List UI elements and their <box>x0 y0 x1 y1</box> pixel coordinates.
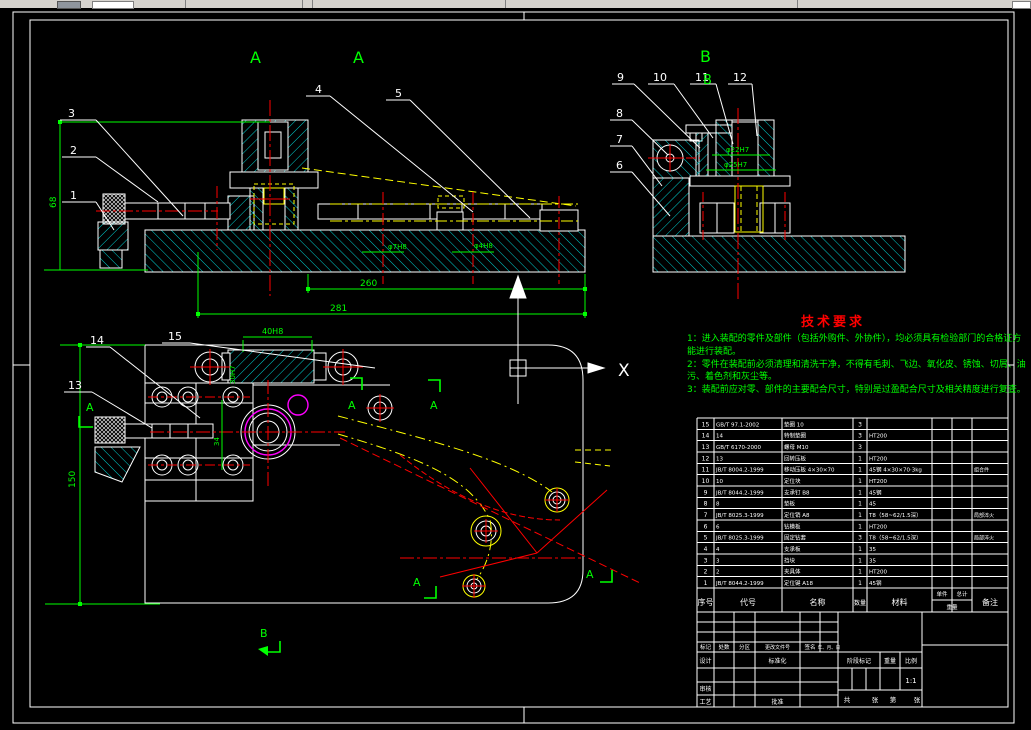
bom-row-qty: 1 <box>858 523 862 530</box>
section-mark-a2: A <box>353 48 364 67</box>
tb-sign: 签名 <box>804 643 815 651</box>
bom-row-name: 螺母 M10 <box>784 443 809 451</box>
balloon-10: 10 <box>653 71 667 84</box>
bom-header-qty: 数量 <box>854 599 866 607</box>
plan-section-marks: A A A A A B <box>79 378 612 656</box>
dim-slot: 40H8 <box>262 327 283 336</box>
bom-header-remark: 备注 <box>982 597 998 607</box>
balloon-4: 4 <box>315 83 322 96</box>
tech-req-line: 3：装配前应对零、部件的主要配合尺寸，特别是过盈配合尺寸及相关精度进行复查。 <box>687 384 979 397</box>
section-mark-a7: A <box>586 568 594 581</box>
bom-row-no: 9 <box>704 489 708 496</box>
bom-row-qty: 1 <box>858 569 862 576</box>
bom-row-no: 6 <box>704 523 708 530</box>
bom-header-weight: 重量 <box>946 603 958 611</box>
tech-req-line: 2：零件在装配前必须清理和清洗干净，不得有毛刺、飞边、氧化皮、锈蚀、切屑、油 <box>687 359 979 372</box>
bom-row-no: 11 <box>702 467 710 474</box>
bom-row-code: 4 <box>716 547 720 553</box>
bom-row-qty: 1 <box>858 455 862 462</box>
balloon-14: 14 <box>90 334 104 347</box>
balloon-1: 1 <box>70 189 77 202</box>
bom-row-code: 14 <box>716 434 723 440</box>
bom-row-code: 3 <box>716 558 720 564</box>
bom-table: 序号代号名称数量材料单件总计重量备注15GB/T 97.1-2002垫圈 103… <box>697 418 1008 612</box>
view-mark-b2: B <box>703 73 712 88</box>
bom-header-no: 序号 <box>698 597 714 607</box>
axis-mark-x: X <box>618 361 630 381</box>
bom-row-material: HT200 <box>869 479 887 485</box>
balloon-2: 2 <box>70 144 77 157</box>
bom-row-name: 支承钉 B8 <box>784 488 810 496</box>
tech-req-title: 技术要求 <box>687 311 979 330</box>
section-mark-a6: A <box>413 576 421 589</box>
bom-row-no: 8 <box>704 501 708 508</box>
balloon-3: 3 <box>68 107 75 120</box>
bom-row-material: 45钢 <box>869 579 882 587</box>
tech-req-line: 能进行装配。 <box>687 346 979 359</box>
plan-centerlines <box>148 349 640 598</box>
balloon-12: 12 <box>733 71 747 84</box>
bom-row-qty: 1 <box>858 512 862 519</box>
tb-count: 处数 <box>718 643 730 651</box>
bom-row-no: 14 <box>702 433 710 440</box>
dim-bore-top: φ22H7 <box>726 146 749 154</box>
bom-row-material: 45钢 <box>869 488 882 496</box>
bom-header-code: 代号 <box>740 597 756 607</box>
bom-row-name: 定位键 A18 <box>784 579 814 587</box>
tech-req-line: 1：进入装配的零件及部件（包括外购件、外协件），均必须具有检验部门的合格证方 <box>687 333 979 346</box>
dim-hole-right: φ4H8 <box>474 242 493 250</box>
bom-header-name: 名称 <box>810 597 826 607</box>
technical-requirements: 技术要求 1：进入装配的零件及部件（包括外购件、外协件），均必须具有检验部门的合… <box>687 311 979 397</box>
bom-row-qty: 3 <box>858 444 862 451</box>
tb-sheet-zhang1: 张 <box>872 695 879 704</box>
bom-row-no: 10 <box>702 478 710 485</box>
bom-row-code: 2 <box>716 570 720 576</box>
bom-row-no: 2 <box>704 569 708 576</box>
section-mark-a3: A <box>86 401 94 414</box>
tb-approve: 批准 <box>771 698 783 706</box>
side-view: φ22H7 φ25H7 9 10 11 12 8 7 6 B B <box>610 47 905 300</box>
tb-mark: 标记 <box>700 643 712 651</box>
bom-row-qty: 3 <box>858 433 862 440</box>
bom-row-qty: 3 <box>858 535 862 542</box>
section-mark-a1: A <box>250 48 261 67</box>
bom-row-qty: 1 <box>858 557 862 564</box>
bom-row-name: 定位销 A8 <box>784 511 810 519</box>
view-mark-b1: B <box>700 47 711 66</box>
tb-sheet-zhang2: 张 <box>914 695 921 704</box>
bom-row-remark: 局部淬火 <box>974 512 994 519</box>
dim-bore-bottom: φ25H7 <box>724 161 747 169</box>
bom-row-code: JB/T 8025.3-1999 <box>715 513 764 519</box>
bom-row-code: JB/T 8025.3-1999 <box>715 536 764 542</box>
bom-row-code: JB/T 8044.2-1999 <box>715 490 764 496</box>
bom-row-qty: 1 <box>858 546 862 553</box>
bom-row-qty: 1 <box>858 489 862 496</box>
tb-scale: 比例 <box>905 657 917 665</box>
bom-row-name: 垫板 <box>784 500 796 508</box>
title-block: 标记 处数 分区 更改文件号 签名 年、月、日 设计 标准化 审核 工艺 批准 … <box>697 612 1008 707</box>
tb-standardization: 标准化 <box>768 657 786 665</box>
bom-row-qty: 3 <box>858 421 862 428</box>
front-view: 68 260 281 φ7H8 φ4H8 3 2 1 4 5 A A <box>44 48 630 404</box>
bom-row-material: HT200 <box>869 434 887 440</box>
bom-row-code: JB/T 8004.2-1999 <box>715 468 764 474</box>
tb-process: 工艺 <box>699 698 711 706</box>
dim-width: 150 <box>68 471 78 488</box>
bom-row-no: 3 <box>704 557 708 564</box>
bom-row-name: 支承板 <box>784 545 801 553</box>
bom-row-name: 移动压板 4×30×70 <box>784 466 835 474</box>
bom-row-name: 回转压板 <box>784 454 807 462</box>
bom-row-name: 钻模板 <box>784 522 801 530</box>
balloon-13: 13 <box>68 379 82 392</box>
bom-row-name: 挡块 <box>784 556 796 564</box>
bom-row-qty: 1 <box>858 580 862 587</box>
tb-weight: 重量 <box>884 657 896 665</box>
bom-row-name: 定位块 <box>784 477 801 485</box>
bom-row-code: 10 <box>716 479 723 485</box>
bom-row-code: 13 <box>716 456 723 462</box>
bom-row-no: 15 <box>702 421 710 428</box>
bom-row-no: 7 <box>704 512 708 519</box>
bom-row-no: 13 <box>702 444 710 451</box>
bom-row-material: T8（58~62/1.5深） <box>868 534 922 542</box>
bom-row-code: JB/T 8044.2-1999 <box>715 581 764 587</box>
dim-offset: 34 <box>213 437 221 446</box>
bom-row-material: 35 <box>869 558 876 564</box>
tb-scale-value: 1:1 <box>905 677 916 685</box>
direction-mark-b: B <box>260 627 268 640</box>
bom-row-qty: 1 <box>858 478 862 485</box>
bom-header-material: 材料 <box>892 597 908 607</box>
bom-row-material: HT200 <box>869 524 887 530</box>
bom-row-name: 垫圈 10 <box>784 420 804 428</box>
bom-row-code: 6 <box>716 524 720 530</box>
bom-header-total: 总计 <box>956 590 968 598</box>
bom-row-code: 8 <box>716 502 720 508</box>
bom-row-code: GB/T 6170-2000 <box>716 445 761 451</box>
balloon-7: 7 <box>616 133 623 146</box>
dim-281: 281 <box>330 304 347 314</box>
dim-height: 68 <box>49 196 59 208</box>
plan-view: 40H8 30H7 34 150 14 13 15 <box>45 327 640 656</box>
dim-rail: 30H7 <box>229 365 237 384</box>
bom-row-no: 12 <box>702 455 710 462</box>
dim-260: 260 <box>360 279 377 289</box>
tb-sheet-total: 共 <box>844 695 851 704</box>
balloon-6: 6 <box>616 159 623 172</box>
datum-marker <box>510 276 604 404</box>
bom-row-material: HT200 <box>869 570 887 576</box>
bom-header-unit: 单件 <box>936 590 948 598</box>
bom-row-no: 5 <box>704 535 708 542</box>
bom-row-remark: 局部淬火 <box>974 535 994 542</box>
cad-application-window: 68 260 281 φ7H8 φ4H8 3 2 1 4 5 A A <box>0 0 1031 730</box>
dim-hole-left: φ7H8 <box>388 243 407 251</box>
tb-zone: 分区 <box>739 643 751 651</box>
section-mark-a4: A <box>348 399 356 412</box>
bom-row-material: T8（58~62/1.5深） <box>868 511 922 519</box>
bom-row-material: 35 <box>869 547 876 553</box>
tb-date: 年、月、日 <box>818 644 841 651</box>
bom-row-material: HT200 <box>869 456 887 462</box>
balloon-15: 15 <box>168 330 182 343</box>
balloon-8: 8 <box>616 107 623 120</box>
bom-row-remark: 组合件 <box>974 467 989 474</box>
tb-change-file: 更改文件号 <box>765 644 790 651</box>
bom-row-material: 45钢 4×30×70·3kg <box>869 466 922 474</box>
tb-review: 审核 <box>699 685 711 693</box>
bom-row-qty: 1 <box>858 501 862 508</box>
section-mark-a5: A <box>430 399 438 412</box>
bom-row-no: 4 <box>704 546 708 553</box>
bom-row-qty: 1 <box>858 467 862 474</box>
balloon-5: 5 <box>395 87 402 100</box>
tech-req-line: 污、着色剂和灰尘等。 <box>687 371 979 384</box>
plan-workpiece-phantom <box>338 416 612 597</box>
bom-row-no: 1 <box>704 580 708 587</box>
tb-stage-mark: 阶段标记 <box>847 657 871 665</box>
tb-sheet-page: 第 <box>890 695 897 704</box>
bom-row-name: 夹具体 <box>784 568 801 576</box>
tb-design: 设计 <box>699 657 711 665</box>
balloon-9: 9 <box>617 71 624 84</box>
bom-row-name: 特制垫圈 <box>784 432 807 440</box>
bom-row-material: 45 <box>869 502 876 508</box>
bom-row-name: 固定钻套 <box>784 534 807 542</box>
bom-row-code: GB/T 97.1-2002 <box>716 422 759 428</box>
